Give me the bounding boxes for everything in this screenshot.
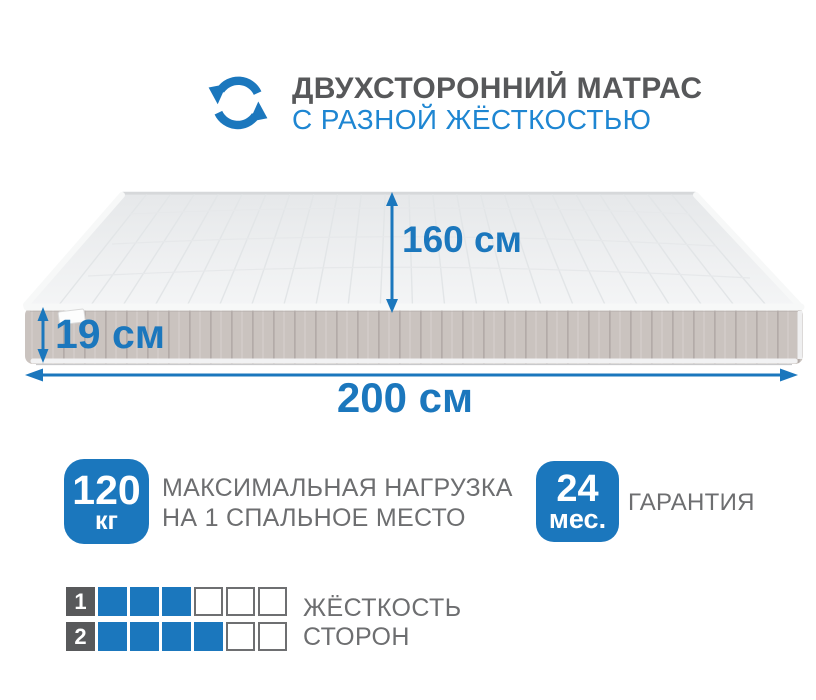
- page-title: ДВУХСТОРОННИЙ МАТРАС: [292, 72, 702, 106]
- max-load-unit: кг: [95, 509, 118, 533]
- hardness-filled-square: [162, 622, 191, 651]
- hardness-scale-side-2: [98, 622, 287, 651]
- hardness-filled-square: [162, 587, 191, 616]
- hardness-row-side-2: 2: [66, 622, 287, 651]
- hardness-side-number: 2: [66, 622, 95, 651]
- max-load-caption-line1: МАКСИМАЛЬНАЯ НАГРУЗКА: [162, 473, 513, 503]
- hardness-empty-square: [258, 587, 287, 616]
- hardness-filled-square: [98, 587, 127, 616]
- hardness-empty-square: [258, 622, 287, 651]
- hardness-label-line2: СТОРОН: [303, 623, 410, 652]
- hardness-label-line1: ЖЁСТКОСТЬ: [303, 594, 462, 623]
- hardness-filled-square: [130, 587, 159, 616]
- hardness-empty-square: [226, 587, 255, 616]
- length-dimension-label: 200 см: [290, 377, 520, 419]
- hardness-side-number: 1: [66, 587, 95, 616]
- hardness-row-side-1: 1: [66, 587, 287, 616]
- warranty-badge: 24 мес.: [536, 461, 619, 542]
- max-load-caption: МАКСИМАЛЬНАЯ НАГРУЗКА НА 1 СПАЛЬНОЕ МЕСТ…: [162, 473, 513, 533]
- warranty-value: 24: [556, 472, 598, 506]
- hardness-empty-square: [226, 622, 255, 651]
- width-dimension-label: 160 см: [402, 221, 522, 258]
- max-load-value: 120: [72, 471, 140, 509]
- hardness-scale-side-1: [98, 587, 287, 616]
- infographic-canvas: ДВУХСТОРОННИЙ МАТРАС С РАЗНОЙ ЖЁСТКОСТЬЮ: [0, 0, 816, 700]
- height-dimension-label: 19 см: [55, 314, 165, 355]
- hardness-filled-square: [194, 622, 223, 651]
- warranty-unit: мес.: [549, 506, 606, 532]
- page-subtitle: С РАЗНОЙ ЖЁСТКОСТЬЮ: [292, 104, 651, 136]
- hardness-empty-square: [194, 587, 223, 616]
- hardness-filled-square: [98, 622, 127, 651]
- hardness-filled-square: [130, 622, 159, 651]
- rotate-arrows-icon: [203, 64, 273, 146]
- max-load-badge: 120 кг: [64, 459, 149, 544]
- max-load-caption-line2: НА 1 СПАЛЬНОЕ МЕСТО: [162, 503, 513, 533]
- warranty-caption: ГАРАНТИЯ: [628, 488, 755, 518]
